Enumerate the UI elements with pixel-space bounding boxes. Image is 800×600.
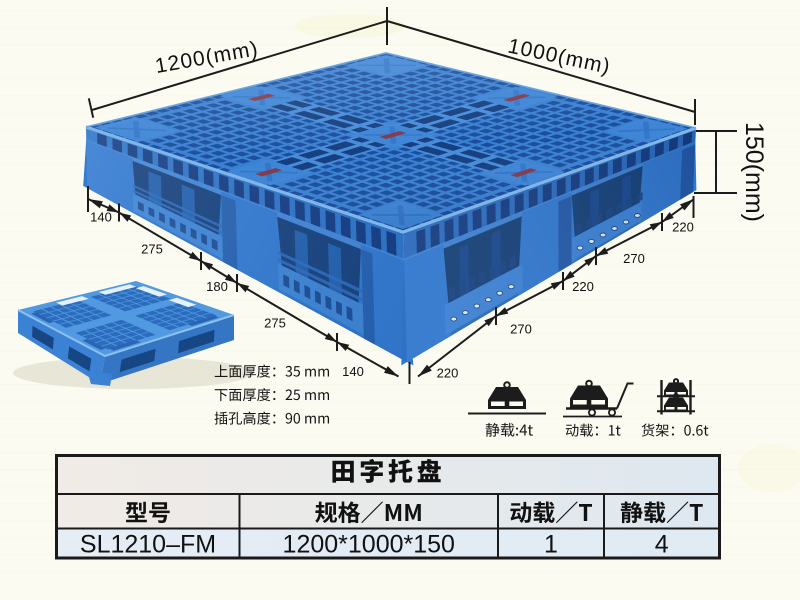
svg-text:275: 275 [264, 316, 286, 331]
svg-text:275: 275 [141, 242, 163, 257]
svg-text:140: 140 [90, 210, 112, 225]
svg-text:SL1210–FM: SL1210–FM [80, 531, 216, 559]
svg-text:220: 220 [572, 279, 594, 294]
svg-text:270: 270 [623, 251, 645, 266]
svg-text:180: 180 [206, 279, 228, 294]
svg-text:1: 1 [544, 531, 558, 559]
svg-text:220: 220 [672, 220, 694, 235]
svg-text:1200*1000*150: 1200*1000*150 [283, 531, 455, 559]
svg-text:150(mm): 150(mm) [740, 122, 768, 222]
svg-text:4: 4 [655, 531, 669, 559]
svg-text:270: 270 [510, 322, 532, 337]
svg-text:140: 140 [342, 364, 364, 379]
svg-text:220: 220 [437, 366, 459, 381]
